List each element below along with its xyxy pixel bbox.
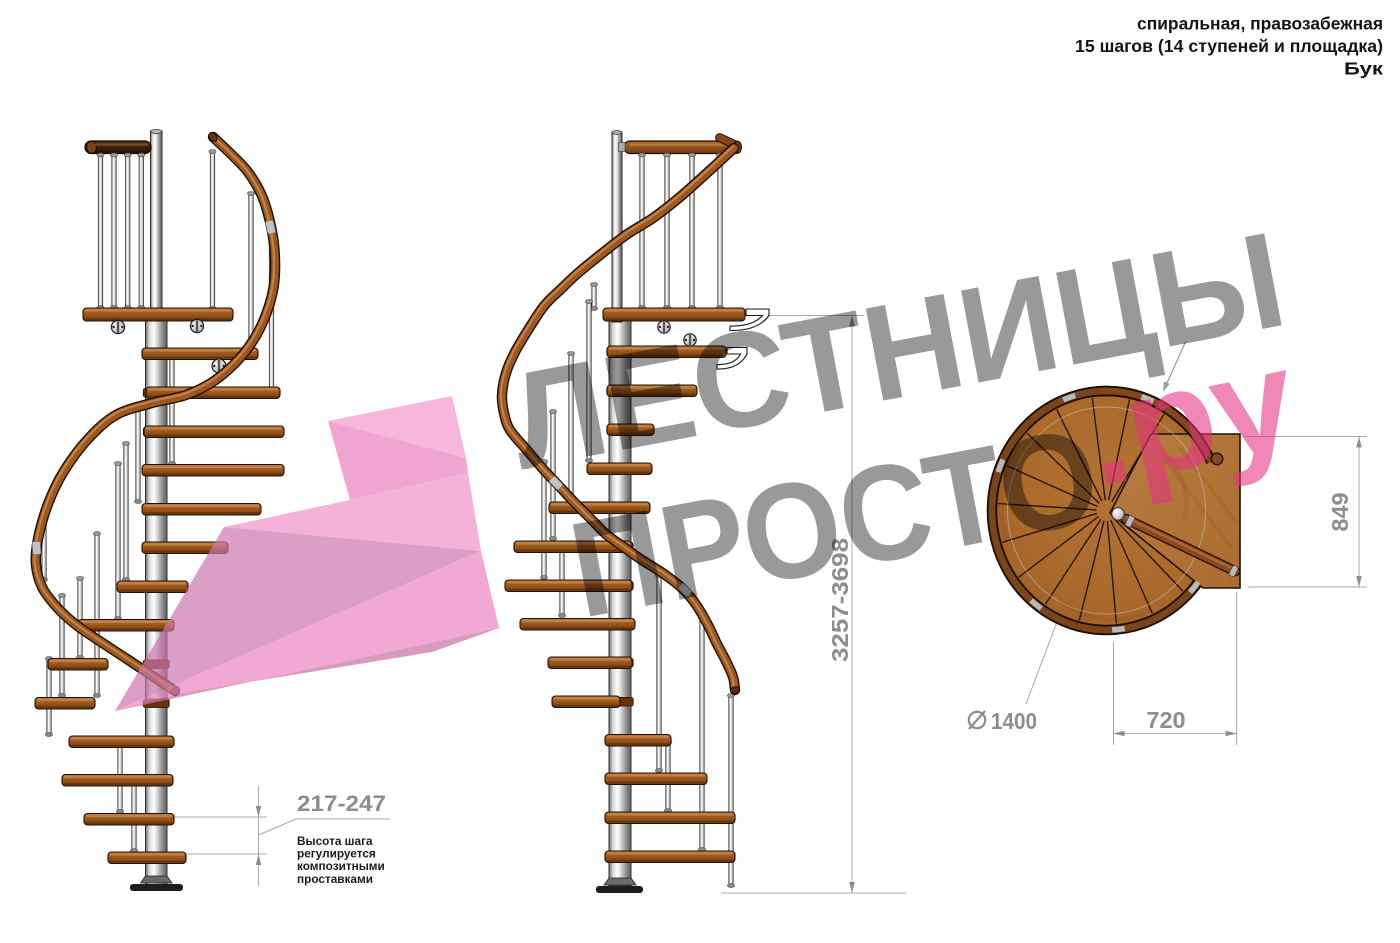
- svg-text:проставками: проставками: [297, 872, 373, 886]
- svg-text:1400: 1400: [991, 708, 1037, 734]
- svg-text:15 шагов (14 ступеней и площад: 15 шагов (14 ступеней и площадка): [1075, 36, 1383, 56]
- svg-text:217-247: 217-247: [297, 791, 386, 816]
- svg-text:Бук: Бук: [1344, 59, 1383, 79]
- svg-text:720: 720: [1146, 707, 1185, 733]
- svg-text:849: 849: [1327, 492, 1353, 531]
- svg-text:спиральная, правозабежная: спиральная, правозабежная: [1137, 14, 1383, 34]
